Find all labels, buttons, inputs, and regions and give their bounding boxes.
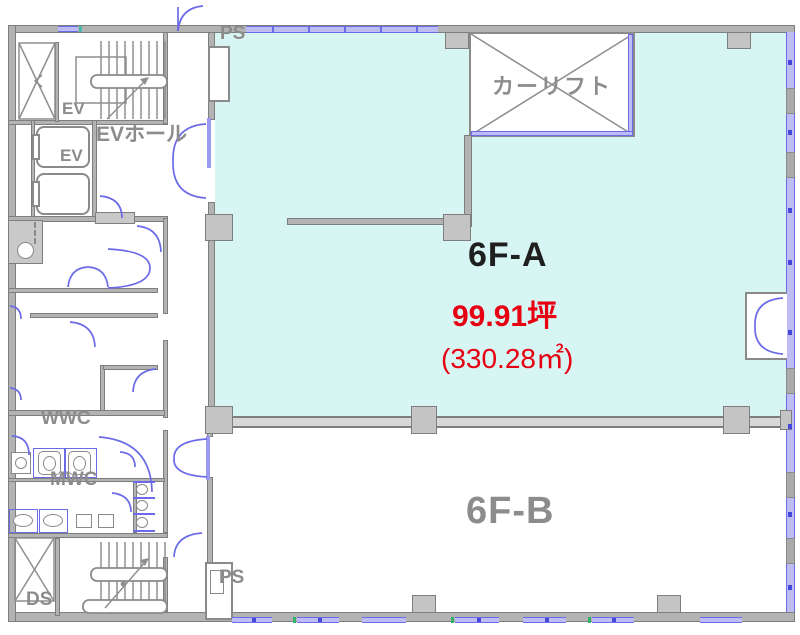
door-arc bbox=[88, 267, 108, 287]
unit-b-label: 6F-B bbox=[466, 492, 554, 530]
door-arc bbox=[12, 436, 29, 455]
door-arc bbox=[70, 322, 95, 347]
door-arc bbox=[108, 249, 150, 268]
window-casement-arc bbox=[10, 306, 21, 319]
window-casement-arc bbox=[10, 388, 21, 400]
door-arc bbox=[174, 533, 202, 557]
door-arc bbox=[68, 267, 88, 287]
ev-lower-label: EV bbox=[60, 147, 83, 164]
door-arc bbox=[108, 268, 150, 288]
door-arc bbox=[173, 161, 206, 198]
door-arc bbox=[120, 452, 135, 467]
door-arc bbox=[112, 493, 131, 512]
ps-bottom-label: PS bbox=[219, 568, 244, 587]
ev-upper-label: EV bbox=[62, 100, 85, 117]
wwc-label: WWC bbox=[41, 409, 91, 428]
ps-top-label: PS bbox=[220, 24, 245, 43]
door-arc bbox=[755, 298, 783, 326]
ds-label: DS bbox=[26, 590, 52, 609]
unit-a-area-tsubo: 99.91坪 bbox=[452, 302, 557, 332]
floor-plan: カーリフト bbox=[0, 0, 800, 635]
door-arc bbox=[99, 437, 152, 492]
door-arc bbox=[100, 196, 122, 218]
door-arc bbox=[174, 439, 207, 459]
ev-hall-label: EVホール bbox=[96, 124, 187, 145]
door-swing-arcs bbox=[0, 0, 800, 635]
door-arc bbox=[755, 326, 783, 354]
door-arc bbox=[137, 226, 161, 252]
door-arc bbox=[133, 369, 156, 392]
door-arc bbox=[174, 459, 207, 477]
unit-a-label: 6F-A bbox=[468, 238, 548, 272]
door-arc bbox=[178, 6, 203, 31]
mwc-label: MWC bbox=[50, 470, 97, 489]
unit-a-area-m2: (330.28㎡) bbox=[441, 345, 573, 373]
